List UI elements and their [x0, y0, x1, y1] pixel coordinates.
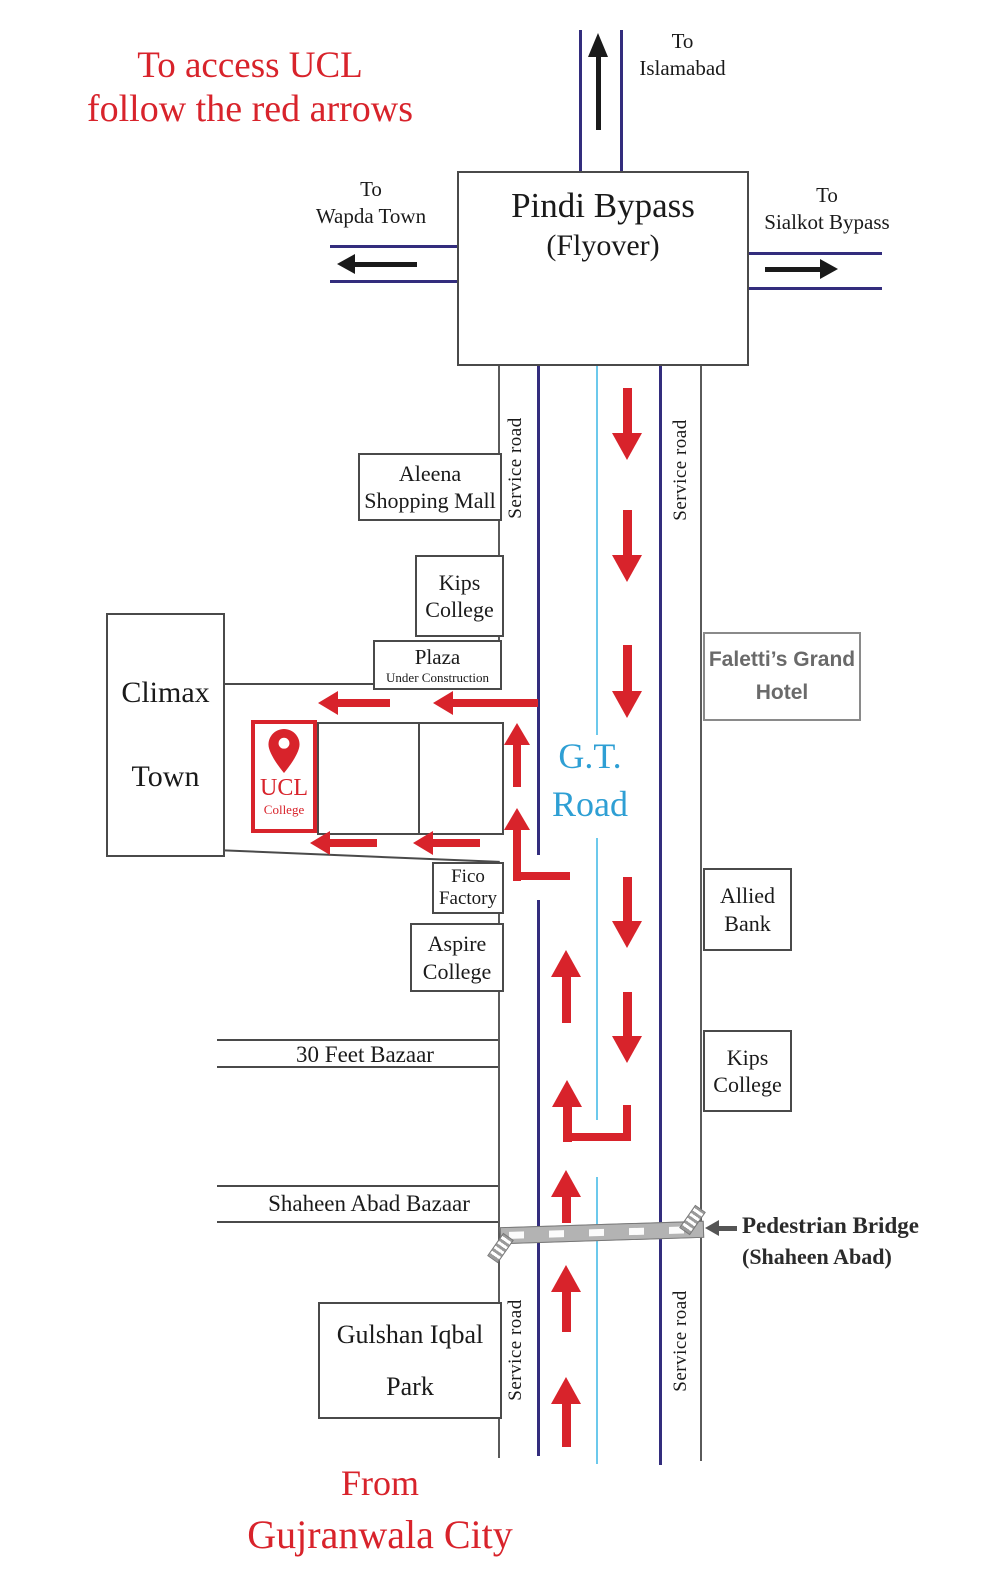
road-line [620, 30, 623, 171]
route-segment [623, 1105, 631, 1141]
red-arrow-left-head [318, 691, 338, 715]
red-arrow-up-head [551, 950, 581, 977]
bridge_dark-arrow-left-shaft [717, 1226, 737, 1231]
road-line [537, 900, 540, 1456]
climax-line2: Town [132, 759, 200, 795]
road-line [330, 280, 457, 283]
red-arrow-left-head [413, 831, 433, 855]
red-arrow-down-head [612, 1036, 642, 1063]
red-arrow-left-head [433, 691, 453, 715]
from-line2: Gujranwala City [170, 1511, 590, 1559]
bridge-ramp-left [487, 1233, 514, 1263]
map-note: To access UCL follow the red arrows [40, 44, 460, 131]
climax-town-box: Climax Town [106, 613, 225, 857]
road-line-slanted [215, 849, 500, 863]
faletti-line1: Faletti’s Grand [709, 644, 855, 677]
red-arrow-down-shaft [623, 388, 632, 435]
red-arrow-down-head [612, 555, 642, 582]
fico-line1: Fico [451, 866, 485, 888]
red-arrow-up-shaft [562, 975, 571, 1023]
gt-road-line1: G.T. [540, 733, 640, 781]
flyover-title: Pindi Bypass [459, 187, 747, 226]
bridge-line2: (Shaheen Abad) [742, 1246, 967, 1268]
red-arrow-down-head [612, 433, 642, 460]
red-arrow-up-shaft [562, 1402, 571, 1447]
road-line [330, 245, 457, 248]
plaza-line2: Under Construction [386, 670, 489, 686]
bridge-walkway-markings [509, 1226, 695, 1239]
red-arrow-left-shaft [431, 839, 480, 847]
red-arrow-left-head [310, 831, 330, 855]
to-wapda-town-label: To Wapda Town [300, 176, 442, 231]
allied-line2: Bank [724, 910, 770, 938]
road-line [217, 1185, 498, 1187]
from-gujranwala-label: From Gujranwala City [170, 1462, 590, 1559]
shaheen-abad-bazaar-label: Shaheen Abad Bazaar [228, 1191, 510, 1217]
red-arrow-up-head [504, 808, 530, 830]
aspire-line1: Aspire [428, 930, 487, 958]
red-arrow-up-shaft [562, 1290, 571, 1332]
red-arrow-up-head [504, 723, 530, 745]
red-arrow-up-shaft [563, 1105, 572, 1142]
red-arrow-down-head [612, 691, 642, 718]
road-line [700, 362, 702, 1461]
ucl-college-box: UCL College [251, 720, 317, 833]
climax-line1: Climax [121, 675, 209, 711]
gulshan-line1: Gulshan Iqbal [337, 1319, 484, 1350]
road-line [745, 287, 882, 290]
to-sialkot-bypass-label: To Sialkot Bypass [748, 182, 906, 237]
road-line [217, 1221, 498, 1223]
pedestrian-bridge [500, 1221, 704, 1244]
service-road-label-upper-right: Service road [670, 419, 692, 520]
note-line2: follow the red arrows [40, 87, 460, 131]
aleena-line2: Shopping Mall [364, 487, 495, 515]
black-arrow-up-head [588, 33, 608, 57]
red-arrow-left-shaft [328, 839, 377, 847]
kips-college-left-box: Kips College [415, 555, 504, 637]
location-pin-icon [268, 729, 300, 773]
red-arrow-down-shaft [623, 510, 632, 557]
road-line [745, 252, 882, 255]
ucl-building-block [317, 722, 504, 835]
aspire-line2: College [423, 958, 491, 986]
road-line [596, 1177, 598, 1464]
route-map: To access UCL follow the red arrows Pind… [0, 0, 1000, 1587]
black-arrow-left-shaft [353, 262, 417, 267]
road-line [596, 362, 598, 735]
red-arrow-up-head [551, 1377, 581, 1404]
allied-bank-box: Allied Bank [703, 868, 792, 951]
red-arrow-up-shaft [513, 743, 521, 787]
service-road-label-upper-left: Service road [505, 417, 527, 518]
gt-road-label: G.T. Road [540, 733, 640, 828]
ucl-line2: College [264, 802, 304, 818]
thirty-feet-bazaar-label: 30 Feet Bazaar [240, 1042, 490, 1068]
to-sialkot-to: To [748, 182, 906, 209]
kips-right-line2: College [713, 1071, 781, 1099]
pindi-bypass-flyover-box: Pindi Bypass (Flyover) [457, 171, 749, 366]
ucl-line1: UCL [260, 775, 308, 802]
plaza-under-construction-box: Plaza Under Construction [373, 640, 502, 690]
aleena-line1: Aleena [399, 460, 461, 488]
to-islamabad-name: Islamabad [625, 55, 740, 82]
red-arrow-up-head [551, 1265, 581, 1292]
faletti-line2: Hotel [756, 677, 809, 710]
black-arrow-up-shaft [596, 55, 601, 130]
aleena-shopping-mall-box: Aleena Shopping Mall [358, 453, 502, 521]
road-line [596, 838, 598, 1120]
red-arrow-down-shaft [623, 645, 632, 693]
plaza-line1: Plaza [415, 644, 460, 670]
faletti-grand-hotel-box: Faletti’s Grand Hotel [703, 632, 861, 721]
service-road-label-lower-right: Service road [670, 1290, 692, 1391]
to-wapda-name: Wapda Town [300, 203, 442, 230]
gt-road-line2: Road [540, 781, 640, 829]
black-arrow-right-head [820, 259, 838, 279]
red-arrow-up-head [552, 1080, 582, 1107]
kips-college-right-box: Kips College [703, 1030, 792, 1112]
road-line [659, 362, 662, 1465]
note-line1: To access UCL [40, 44, 460, 87]
pedestrian-bridge-label: Pedestrian Bridge (Shaheen Abad) [742, 1214, 967, 1268]
fico-factory-box: Fico Factory [432, 862, 504, 914]
red-arrow-down-shaft [623, 992, 632, 1038]
fico-line2: Factory [439, 888, 497, 910]
route-segment [513, 872, 570, 880]
flyover-subtitle: (Flyover) [459, 226, 747, 265]
black-arrow-right-shaft [765, 267, 822, 272]
to-wapda-to: To [300, 176, 442, 203]
red-arrow-left-shaft [336, 699, 390, 707]
aspire-college-box: Aspire College [410, 923, 504, 992]
service-road-label-lower-left: Service road [505, 1299, 527, 1400]
to-islamabad-to: To [625, 28, 740, 55]
route-segment [563, 1133, 631, 1141]
kips-left-line2: College [425, 596, 493, 624]
red-arrow-up-head [551, 1170, 581, 1197]
red-arrow-up-shaft [562, 1195, 571, 1223]
to-islamabad-label: To Islamabad [625, 28, 740, 83]
kips-left-line1: Kips [439, 569, 481, 597]
from-line1: From [170, 1462, 590, 1505]
red-arrow-up-shaft [513, 828, 521, 881]
gulshan-iqbal-park-box: Gulshan Iqbal Park [318, 1302, 502, 1419]
red-arrow-down-head [612, 921, 642, 948]
bridge-line1: Pedestrian Bridge [742, 1214, 967, 1237]
to-sialkot-name: Sialkot Bypass [748, 209, 906, 236]
building-divider [418, 724, 420, 833]
red-arrow-left-shaft [451, 699, 538, 707]
gulshan-line2: Park [386, 1371, 434, 1402]
red-arrow-down-shaft [623, 877, 632, 923]
kips-right-line1: Kips [727, 1044, 769, 1072]
road-line [579, 30, 582, 171]
allied-line1: Allied [720, 882, 775, 910]
road-line [217, 1039, 498, 1041]
